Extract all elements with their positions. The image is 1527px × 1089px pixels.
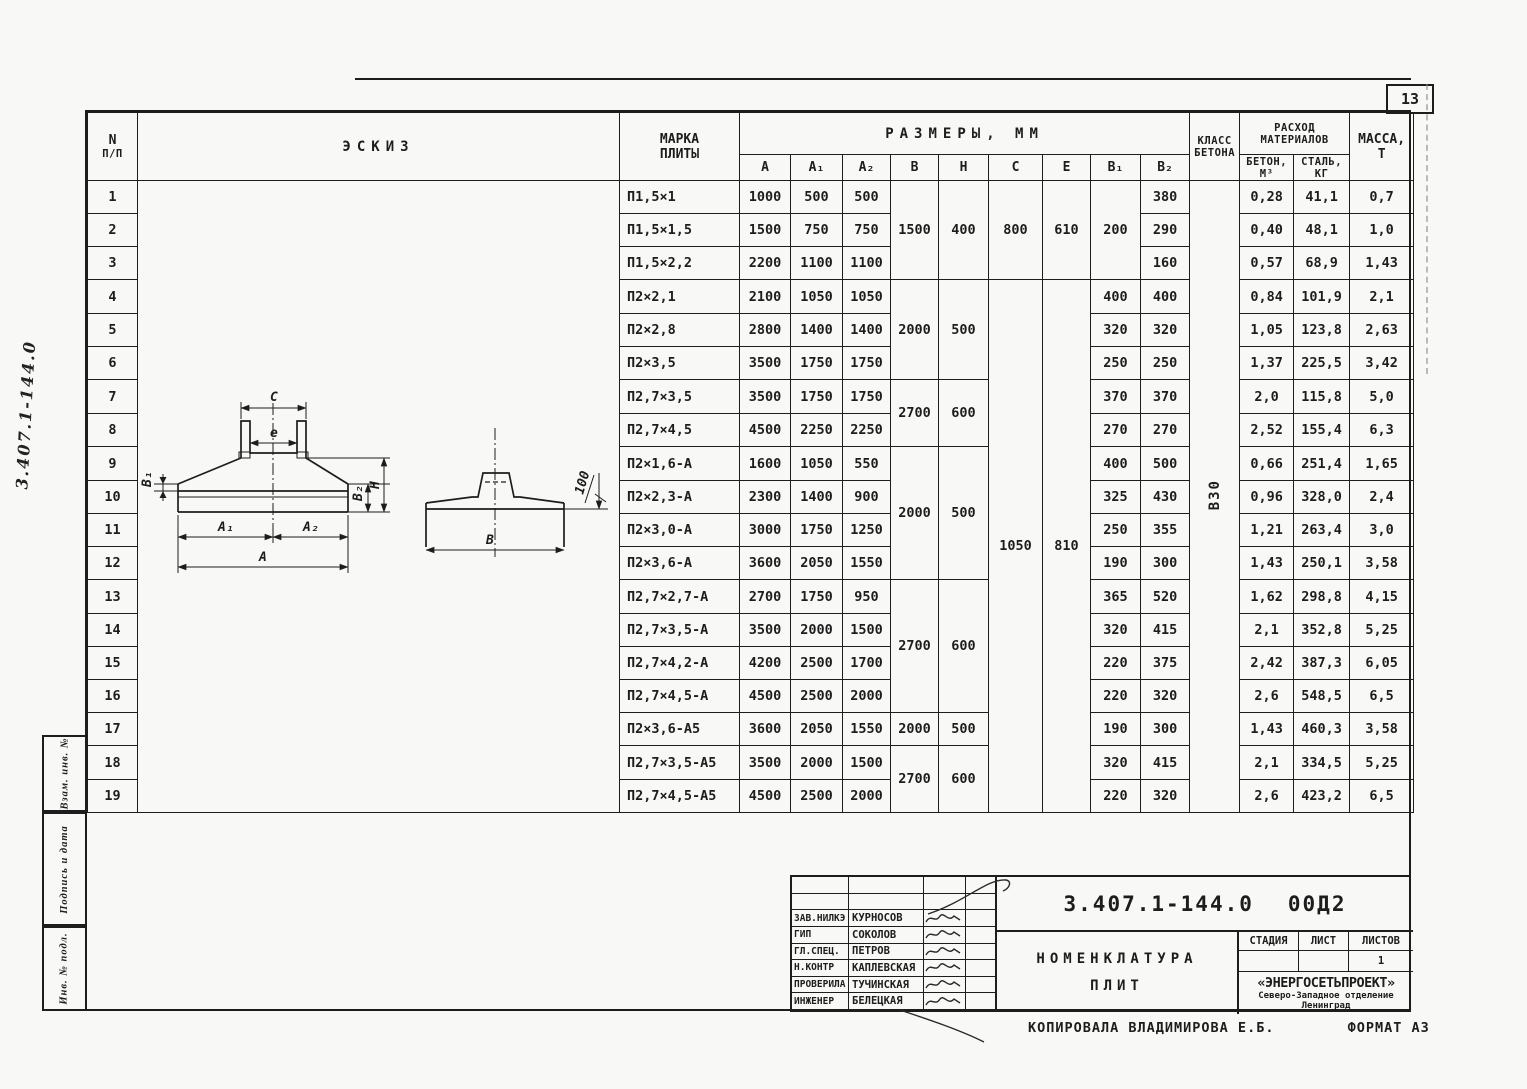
cell-e: 610	[1043, 181, 1091, 280]
cell-steel: 334,5	[1294, 746, 1350, 780]
cell-a2: 1500	[843, 746, 891, 780]
cell-mass: 5,25	[1350, 746, 1414, 780]
cell-mark: П2,7×4,5	[620, 414, 740, 447]
signature	[924, 977, 966, 994]
cell-a: 2200	[740, 247, 791, 280]
cell-b1: 270	[1091, 414, 1141, 447]
cell-mark: П2,7×4,5-А5	[620, 780, 740, 813]
cell-mass: 6,05	[1350, 647, 1414, 680]
format-note: Формат А3	[1348, 1020, 1430, 1036]
cell-b1: 220	[1091, 780, 1141, 813]
cell-mass: 1,0	[1350, 214, 1414, 247]
row-number: 6	[88, 347, 138, 380]
cell-b2: 380	[1141, 181, 1190, 214]
cell-a1: 2050	[791, 547, 843, 580]
dim-label-100: 100	[572, 469, 593, 496]
col-header-a: А	[740, 155, 791, 181]
cell-a1: 2050	[791, 713, 843, 746]
cell-a1: 1050	[791, 447, 843, 481]
cell-steel: 155,4	[1294, 414, 1350, 447]
cell-a: 4500	[740, 680, 791, 713]
cell-b: 2700	[891, 380, 939, 447]
col-header-sizes: Размеры, мм	[740, 113, 1190, 155]
cell-concrete: 0,28	[1240, 181, 1294, 214]
stage-value	[1239, 951, 1299, 972]
cell-h: 400	[939, 181, 989, 280]
cell-concrete: 0,84	[1240, 280, 1294, 314]
cell-b1: 220	[1091, 680, 1141, 713]
sheet-right-edge	[1426, 84, 1428, 374]
cell-a1: 1400	[791, 314, 843, 347]
cell-a: 2300	[740, 481, 791, 514]
cell-mass: 6,3	[1350, 414, 1414, 447]
cell-b2: 250	[1141, 347, 1190, 380]
cell-a: 4500	[740, 414, 791, 447]
sig-date	[966, 960, 995, 977]
cell-a: 3500	[740, 347, 791, 380]
sketch-cell: С е В₁ В₂ Н А₁ А₂ А	[138, 181, 620, 813]
cell-mass: 3,58	[1350, 547, 1414, 580]
cell-b1: 365	[1091, 580, 1141, 614]
cell-a2: 500	[843, 181, 891, 214]
cell-mark: П2×3,5	[620, 347, 740, 380]
cell-concrete: 0,66	[1240, 447, 1294, 481]
cell-concrete: 2,52	[1240, 414, 1294, 447]
cell-b1: 370	[1091, 380, 1141, 414]
cell-a: 1500	[740, 214, 791, 247]
cell-a: 3000	[740, 514, 791, 547]
cell-mass: 0,7	[1350, 181, 1414, 214]
cell-mark: П2×2,8	[620, 314, 740, 347]
cell-mark: П1,5×1,5	[620, 214, 740, 247]
cell-mark: П2,7×3,5-А5	[620, 746, 740, 780]
cell-concrete: 1,62	[1240, 580, 1294, 614]
sig-empty	[849, 877, 924, 894]
col-header-concrete: Бетон, м³	[1240, 155, 1294, 181]
cell-b1: 400	[1091, 447, 1141, 481]
signature-scribble	[924, 927, 962, 942]
row-number: 18	[88, 746, 138, 780]
signature	[924, 927, 966, 944]
cell-steel: 328,0	[1294, 481, 1350, 514]
sig-role: Инженер	[792, 993, 849, 1010]
signature	[924, 960, 966, 977]
sheets-value: 1	[1349, 951, 1413, 972]
cell-b2: 400	[1141, 280, 1190, 314]
col-header-a2: А₂	[843, 155, 891, 181]
cell-b2: 430	[1141, 481, 1190, 514]
cell-a: 1000	[740, 181, 791, 214]
sheet-label: Лист	[1299, 932, 1349, 951]
cell-a1: 1750	[791, 380, 843, 414]
signature-scribble	[924, 994, 962, 1009]
dim-label-b: В	[485, 533, 494, 548]
sig-empty	[966, 894, 995, 911]
row-number: 12	[88, 547, 138, 580]
sig-name: Соколов	[849, 927, 924, 944]
cell-steel: 123,8	[1294, 314, 1350, 347]
row-number: 4	[88, 280, 138, 314]
page-number: 13	[1401, 90, 1419, 108]
cell-a: 3500	[740, 746, 791, 780]
cell-a2: 1250	[843, 514, 891, 547]
org-line2: Северо-Западное отделение	[1258, 991, 1393, 1001]
cell-steel: 423,2	[1294, 780, 1350, 813]
cell-b2: 370	[1141, 380, 1190, 414]
doc-number-cell: 3.407.1-144.0 00Д2	[997, 877, 1413, 932]
signature-scribble	[924, 960, 962, 975]
sig-empty	[792, 877, 849, 894]
cell-concrete: 1,21	[1240, 514, 1294, 547]
signature-scribble	[924, 977, 962, 992]
stage-label: Стадия	[1239, 932, 1299, 951]
cell-a: 4500	[740, 780, 791, 813]
cell-a2: 1700	[843, 647, 891, 680]
col-header-mass: Масса, т	[1350, 113, 1414, 181]
cell-b1: 325	[1091, 481, 1141, 514]
cell-a1: 2250	[791, 414, 843, 447]
col-header-materials: Расход материалов	[1240, 113, 1350, 155]
sig-empty	[966, 877, 995, 894]
cell-concrete: 1,43	[1240, 713, 1294, 746]
plate-sketch: С е В₁ В₂ Н А₁ А₂ А	[138, 181, 617, 812]
col-header-c: С	[989, 155, 1043, 181]
cell-mass: 3,42	[1350, 347, 1414, 380]
dim-label-b1: В₁	[140, 471, 155, 488]
cell-b2: 500	[1141, 447, 1190, 481]
sig-date	[966, 910, 995, 927]
sig-role: ГИП	[792, 927, 849, 944]
cell-b2: 415	[1141, 614, 1190, 647]
sig-name: Тучинская	[849, 977, 924, 994]
sheets-label: Листов	[1349, 932, 1413, 951]
cell-b1: 320	[1091, 614, 1141, 647]
cell-b2: 290	[1141, 214, 1190, 247]
row-number: 19	[88, 780, 138, 813]
cell-steel: 41,1	[1294, 181, 1350, 214]
sig-name: Курносов	[849, 910, 924, 927]
cell-c: 800	[989, 181, 1043, 280]
cell-a: 3600	[740, 713, 791, 746]
cell-b1: 190	[1091, 547, 1141, 580]
cell-a1: 2500	[791, 680, 843, 713]
signature	[924, 944, 966, 961]
col-header-class: Класс бетона	[1190, 113, 1240, 181]
cell-e: 810	[1043, 280, 1091, 813]
cell-mass: 3,58	[1350, 713, 1414, 746]
cell-mark: П2×2,1	[620, 280, 740, 314]
sig-date	[966, 927, 995, 944]
cell-a2: 1050	[843, 280, 891, 314]
bottom-note: Копировала Владимирова Е.Б. Формат А3	[1028, 1020, 1430, 1036]
cell-a1: 750	[791, 214, 843, 247]
sheet-title: Номенклатура плит	[997, 932, 1239, 1014]
cell-mark: П2,7×3,5-А	[620, 614, 740, 647]
cell-steel: 250,1	[1294, 547, 1350, 580]
cell-mass: 6,5	[1350, 780, 1414, 813]
cell-mass: 2,1	[1350, 280, 1414, 314]
cell-b1: 220	[1091, 647, 1141, 680]
cell-b2: 270	[1141, 414, 1190, 447]
cell-steel: 251,4	[1294, 447, 1350, 481]
cell-concrete: 1,05	[1240, 314, 1294, 347]
cell-a1: 1750	[791, 514, 843, 547]
cell-b: 2700	[891, 746, 939, 813]
cell-concrete: 0,40	[1240, 214, 1294, 247]
cell-h: 500	[939, 713, 989, 746]
col-header-a1: А₁	[791, 155, 843, 181]
cell-concrete: 1,37	[1240, 347, 1294, 380]
cell-a: 3500	[740, 614, 791, 647]
cell-b1: 320	[1091, 314, 1141, 347]
col-header-sketch: Эскиз	[138, 113, 620, 181]
cell-b1: 190	[1091, 713, 1141, 746]
signature	[924, 910, 966, 927]
col-header-mark: Марка плиты	[620, 113, 740, 181]
cell-concrete: 2,1	[1240, 614, 1294, 647]
table-row: 1 С е	[88, 181, 1414, 214]
col-header-steel: Сталь, кг	[1294, 155, 1350, 181]
strip-cell-inv: Инв. № подл.	[42, 926, 87, 1011]
cell-mark: П2,7×3,5	[620, 380, 740, 414]
cell-b: 2000	[891, 713, 939, 746]
org-name: «ЭНЕРГОСЕТЬПРОЕКТ»	[1257, 975, 1394, 991]
cell-a2: 750	[843, 214, 891, 247]
cell-concrete: 0,96	[1240, 481, 1294, 514]
cell-mark: П1,5×1	[620, 181, 740, 214]
cell-mark: П2×3,0-А	[620, 514, 740, 547]
cell-mass: 4,15	[1350, 580, 1414, 614]
cell-b: 1500	[891, 181, 939, 280]
cell-steel: 115,8	[1294, 380, 1350, 414]
col-header-h: Н	[939, 155, 989, 181]
cell-a2: 1400	[843, 314, 891, 347]
row-number: 16	[88, 680, 138, 713]
cell-mass: 6,5	[1350, 680, 1414, 713]
cell-steel: 101,9	[1294, 280, 1350, 314]
cell-mark: П2×2,3-А	[620, 481, 740, 514]
org-cell: «ЭНЕРГОСЕТЬПРОЕКТ» Северо-Западное отдел…	[1239, 972, 1413, 1014]
side-doc-number: 3.407.1-144.0	[8, 320, 32, 490]
cell-mark: П2×3,6-А	[620, 547, 740, 580]
sig-empty	[924, 894, 966, 911]
cell-a2: 1750	[843, 380, 891, 414]
cell-b1: 320	[1091, 746, 1141, 780]
sig-date	[966, 977, 995, 994]
cell-concrete: 2,1	[1240, 746, 1294, 780]
row-number: 1	[88, 181, 138, 214]
strip-cell-podpis: Подпись и дата	[42, 812, 87, 926]
cell-steel: 352,8	[1294, 614, 1350, 647]
sig-empty	[849, 894, 924, 911]
cell-b2: 520	[1141, 580, 1190, 614]
cell-b1: 200	[1091, 181, 1141, 280]
cell-a2: 950	[843, 580, 891, 614]
cell-a: 4200	[740, 647, 791, 680]
cell-b: 2000	[891, 447, 939, 580]
cell-b: 2000	[891, 280, 939, 380]
cell-a1: 1050	[791, 280, 843, 314]
row-number: 11	[88, 514, 138, 547]
cell-a: 2700	[740, 580, 791, 614]
cell-concrete: 2,0	[1240, 380, 1294, 414]
cell-concrete: 2,6	[1240, 680, 1294, 713]
col-header-b1: В₁	[1091, 155, 1141, 181]
col-header-b2: В₂	[1141, 155, 1190, 181]
cell-h: 600	[939, 380, 989, 447]
cell-h: 500	[939, 447, 989, 580]
cell-a1: 500	[791, 181, 843, 214]
cell-b1: 400	[1091, 280, 1141, 314]
col-header-b: В	[891, 155, 939, 181]
dim-label-c: С	[270, 390, 278, 405]
cell-b1: 250	[1091, 347, 1141, 380]
cell-a2: 2000	[843, 780, 891, 813]
cell-b2: 355	[1141, 514, 1190, 547]
cell-mark: П2,7×4,5-А	[620, 680, 740, 713]
cell-mass: 2,4	[1350, 481, 1414, 514]
signature	[924, 993, 966, 1010]
cell-a1: 1100	[791, 247, 843, 280]
sig-role: Гл.спец.	[792, 944, 849, 961]
row-number: 5	[88, 314, 138, 347]
row-number: 2	[88, 214, 138, 247]
cell-mark: П2,7×2,7-А	[620, 580, 740, 614]
copied-by: Копировала Владимирова Е.Б.	[1028, 1020, 1274, 1036]
strip-cell-vzam: Взам. инв. №	[42, 735, 87, 812]
cell-mass: 1,65	[1350, 447, 1414, 481]
cell-mass: 1,43	[1350, 247, 1414, 280]
sig-date	[966, 993, 995, 1010]
cell-mass: 5,25	[1350, 614, 1414, 647]
signature-table: Зав.НИЛКЭКурносовГИПСоколовГл.спец.Петро…	[792, 877, 997, 1010]
row-number: 9	[88, 447, 138, 481]
doc-suffix: 00Д2	[1288, 892, 1347, 916]
cell-steel: 48,1	[1294, 214, 1350, 247]
cell-b2: 320	[1141, 314, 1190, 347]
sig-role: Зав.НИЛКЭ	[792, 910, 849, 927]
cell-a2: 1550	[843, 713, 891, 746]
cell-a2: 2000	[843, 680, 891, 713]
cell-a2: 1100	[843, 247, 891, 280]
cell-a: 3600	[740, 547, 791, 580]
dim-label-e: е	[270, 426, 278, 441]
cell-concrete: 2,6	[1240, 780, 1294, 813]
cell-concrete: 0,57	[1240, 247, 1294, 280]
dim-label-b2: В₂	[351, 485, 366, 502]
sig-empty	[792, 894, 849, 911]
cell-a2: 2250	[843, 414, 891, 447]
cell-steel: 225,5	[1294, 347, 1350, 380]
cell-h: 600	[939, 746, 989, 813]
cell-mark: П1,5×2,2	[620, 247, 740, 280]
cell-mass: 2,63	[1350, 314, 1414, 347]
row-number: 7	[88, 380, 138, 414]
cell-h: 500	[939, 280, 989, 380]
dim-label-a: А	[258, 550, 267, 565]
cell-steel: 387,3	[1294, 647, 1350, 680]
doc-number: 3.407.1-144.0	[1064, 892, 1254, 916]
row-number: 15	[88, 647, 138, 680]
drawing-sheet: 13 3.407.1-144.0 Взам. инв. № Подпись и …	[0, 0, 1527, 1089]
org-line3: Ленинград	[1302, 1001, 1351, 1011]
cell-b2: 320	[1141, 680, 1190, 713]
cell-steel: 460,3	[1294, 713, 1350, 746]
cell-mass: 5,0	[1350, 380, 1414, 414]
cell-b2: 300	[1141, 713, 1190, 746]
sig-name: Каплевская	[849, 960, 924, 977]
cell-steel: 298,8	[1294, 580, 1350, 614]
dim-label-a1: А₁	[217, 520, 234, 535]
cell-a: 3500	[740, 380, 791, 414]
cell-a2: 550	[843, 447, 891, 481]
cell-mass: 3,0	[1350, 514, 1414, 547]
cell-steel: 263,4	[1294, 514, 1350, 547]
row-number: 13	[88, 580, 138, 614]
cell-a1: 1750	[791, 580, 843, 614]
cell-a: 1600	[740, 447, 791, 481]
title-block: Зав.НИЛКЭКурносовГИПСоколовГл.спец.Петро…	[790, 875, 1411, 1012]
cell-mark: П2,7×4,2-А	[620, 647, 740, 680]
cell-b2: 320	[1141, 780, 1190, 813]
cell-b2: 375	[1141, 647, 1190, 680]
row-number: 14	[88, 614, 138, 647]
col-header-num: N п/п	[88, 113, 138, 181]
sheet-top-rule	[355, 78, 1411, 80]
cell-a1: 1750	[791, 347, 843, 380]
sig-name: Петров	[849, 944, 924, 961]
cell-a1: 2500	[791, 780, 843, 813]
cell-b1: 250	[1091, 514, 1141, 547]
cell-b2: 415	[1141, 746, 1190, 780]
cell-a2: 1550	[843, 547, 891, 580]
cell-steel: 68,9	[1294, 247, 1350, 280]
cell-a2: 1500	[843, 614, 891, 647]
concrete-class-value: В30	[1207, 479, 1223, 510]
cell-a: 2800	[740, 314, 791, 347]
sig-empty	[924, 877, 966, 894]
dim-label-h: Н	[368, 481, 383, 490]
sig-role: Н.контр	[792, 960, 849, 977]
cell-a1: 2500	[791, 647, 843, 680]
stage-grid: Стадия Лист Листов 1	[1239, 932, 1413, 972]
cell-concrete: 2,42	[1240, 647, 1294, 680]
sig-date	[966, 944, 995, 961]
row-number: 3	[88, 247, 138, 280]
cell-mark: П2×3,6-А5	[620, 713, 740, 746]
cell-a1: 2000	[791, 614, 843, 647]
col-header-e: е	[1043, 155, 1091, 181]
cell-steel: 548,5	[1294, 680, 1350, 713]
cell-a1: 1400	[791, 481, 843, 514]
cell-b2: 160	[1141, 247, 1190, 280]
cell-mark: П2×1,6-А	[620, 447, 740, 481]
signature-scribble	[924, 944, 962, 959]
dim-label-a2: А₂	[302, 520, 319, 535]
cell-a: 2100	[740, 280, 791, 314]
cell-c: 1050	[989, 280, 1043, 813]
sig-name: Белецкая	[849, 993, 924, 1010]
cell-h: 600	[939, 580, 989, 713]
signature-scribble	[924, 911, 962, 926]
row-number: 8	[88, 414, 138, 447]
sheet-value	[1299, 951, 1349, 972]
cell-a2: 900	[843, 481, 891, 514]
cell-b: 2700	[891, 580, 939, 713]
cell-a1: 2000	[791, 746, 843, 780]
cell-concrete: 1,43	[1240, 547, 1294, 580]
nomenclature-table: N п/п Эскиз Марка плиты Размеры, мм Клас…	[87, 112, 1414, 813]
